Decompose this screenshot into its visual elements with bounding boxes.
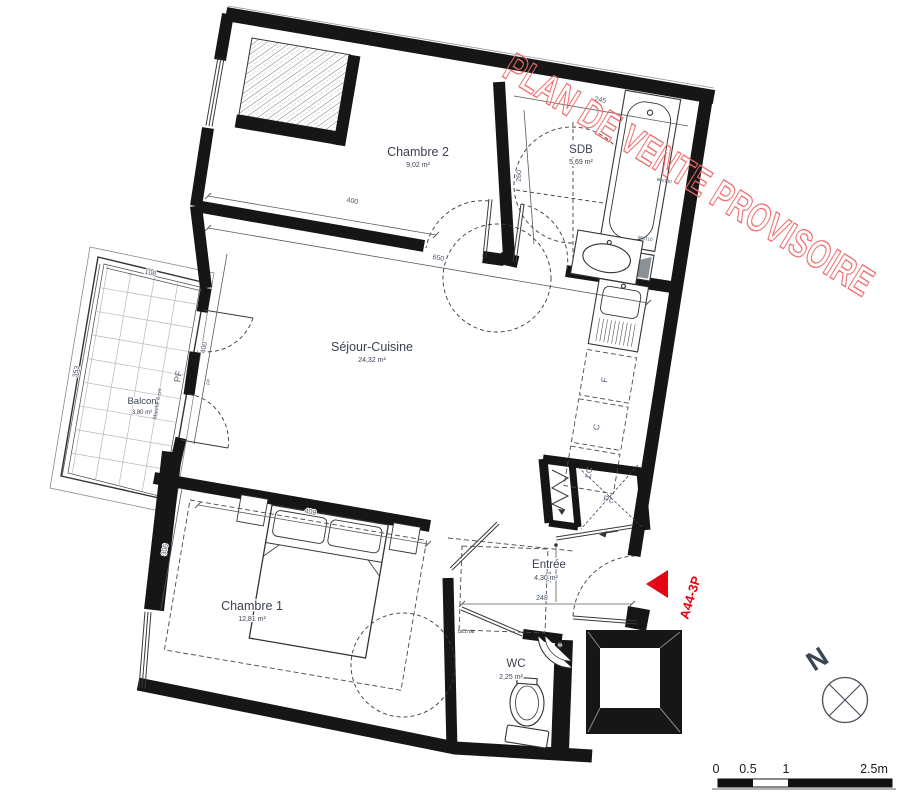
toilet bbox=[505, 677, 549, 748]
room-label-entree: Entrée bbox=[532, 559, 566, 571]
room-area-chambre2: 9,02 m² bbox=[406, 162, 430, 169]
shaft bbox=[586, 630, 682, 734]
floor-plan-page: Balcon 3,80 m² bbox=[0, 0, 910, 800]
room-area-entree: 4,30 m² bbox=[534, 575, 558, 582]
kitchen-fridge-label: F bbox=[599, 376, 610, 383]
dim-chambre2-width: 400 bbox=[346, 197, 359, 206]
unit-ref-label: A44-3P bbox=[677, 574, 704, 621]
floor-plan-drawing: Balcon 3,80 m² bbox=[0, 0, 910, 800]
pf-small-label: PF bbox=[206, 378, 213, 385]
room-area-sejour: 24,32 m² bbox=[358, 357, 386, 364]
room-area-chambre1: 12,81 m² bbox=[238, 616, 266, 623]
room-label-chambre2: Chambre 2 bbox=[387, 145, 449, 159]
closet-pl-label: PL bbox=[603, 493, 615, 505]
scale-25m: 2.5m bbox=[860, 762, 888, 776]
room-label-sdb: SDB bbox=[569, 144, 593, 156]
door-ref-label: DE170B bbox=[458, 629, 474, 634]
dim-sejour-height: 400 bbox=[200, 341, 209, 354]
scale-1: 1 bbox=[783, 762, 790, 776]
room-label-wc: WC bbox=[506, 658, 525, 670]
dim-sdb-height: 260 bbox=[516, 170, 524, 182]
pf-label: PF bbox=[172, 369, 184, 383]
turning-circle-sejour bbox=[443, 224, 551, 332]
watermark-text: PLAN DE VENTE PROVISOIRE bbox=[496, 46, 881, 306]
window-chambre1 bbox=[139, 612, 151, 689]
room-area-balcon: 3,80 m² bbox=[132, 410, 152, 416]
room-label-balcon: Balcon bbox=[127, 396, 156, 407]
kitchen-cooker-label: C bbox=[591, 423, 602, 431]
scale-05: 0.5 bbox=[739, 762, 756, 776]
room-area-sdb: 5,69 m² bbox=[569, 159, 593, 166]
technical-shaft-hatch bbox=[235, 38, 361, 147]
dim-entree-width: 248 bbox=[536, 595, 548, 602]
kitchen-lc-label: LC bbox=[583, 466, 595, 478]
room-label-chambre1: Chambre 1 bbox=[221, 599, 283, 613]
unit-marker-triangle bbox=[646, 570, 668, 598]
doors bbox=[181, 199, 637, 636]
dim-sejour-width: 650 bbox=[432, 254, 445, 263]
unit-marker: A44-3P bbox=[646, 570, 704, 621]
room-label-sejour: Séjour-Cuisine bbox=[331, 340, 413, 354]
room-area-wc: 2,25 m² bbox=[499, 674, 523, 681]
window-chambre2 bbox=[206, 57, 224, 126]
north-label: N bbox=[801, 641, 834, 677]
scale-bar: 0 0.5 1 2.5m bbox=[712, 762, 896, 789]
north-compass: N bbox=[801, 641, 868, 722]
scale-0: 0 bbox=[713, 762, 720, 776]
